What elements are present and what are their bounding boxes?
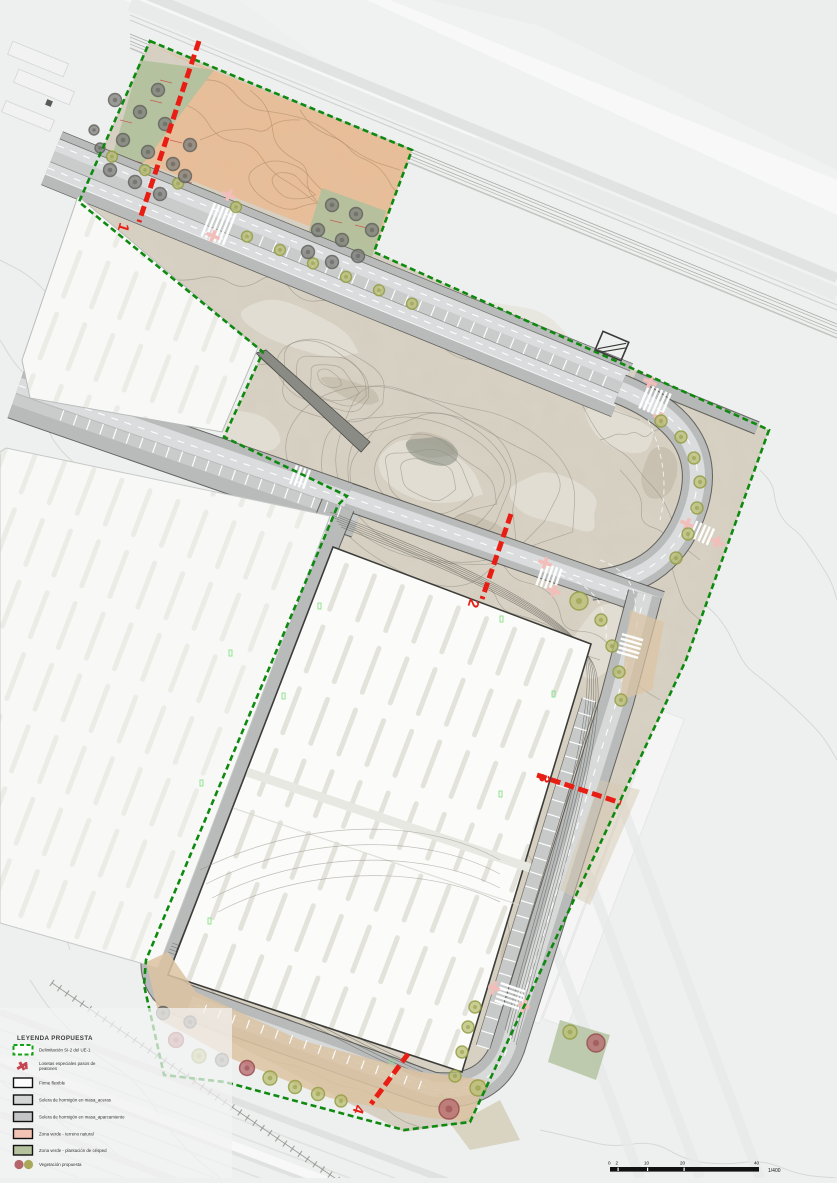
svg-text:40: 40 [754, 1161, 760, 1166]
svg-text:Solera de hormigón en masa_apa: Solera de hormigón en masa_aparcamiento [39, 1115, 125, 1120]
svg-text:20: 20 [680, 1161, 686, 1166]
svg-text:10: 10 [644, 1161, 650, 1166]
svg-text:Delimitación SI-2 del UE-1: Delimitación SI-2 del UE-1 [39, 1048, 91, 1053]
svg-text:Firme flexible: Firme flexible [39, 1081, 66, 1086]
svg-text:0: 0 [608, 1161, 611, 1166]
svg-text:1/400: 1/400 [768, 1168, 781, 1174]
svg-text:Zona verde - plantación de cés: Zona verde - plantación de césped [39, 1148, 107, 1153]
svg-text:Zona verde - terreno natural: Zona verde - terreno natural [39, 1132, 94, 1137]
svg-text:2: 2 [616, 1161, 619, 1166]
svg-text:peatones: peatones [39, 1066, 58, 1071]
svg-text:Solera de hormigón en masa_ace: Solera de hormigón en masa_aceras [39, 1098, 112, 1103]
svg-text:LEYENDA PROPUESTA: LEYENDA PROPUESTA [17, 1035, 93, 1042]
svg-text:Vegetación propuesta: Vegetación propuesta [39, 1162, 82, 1167]
